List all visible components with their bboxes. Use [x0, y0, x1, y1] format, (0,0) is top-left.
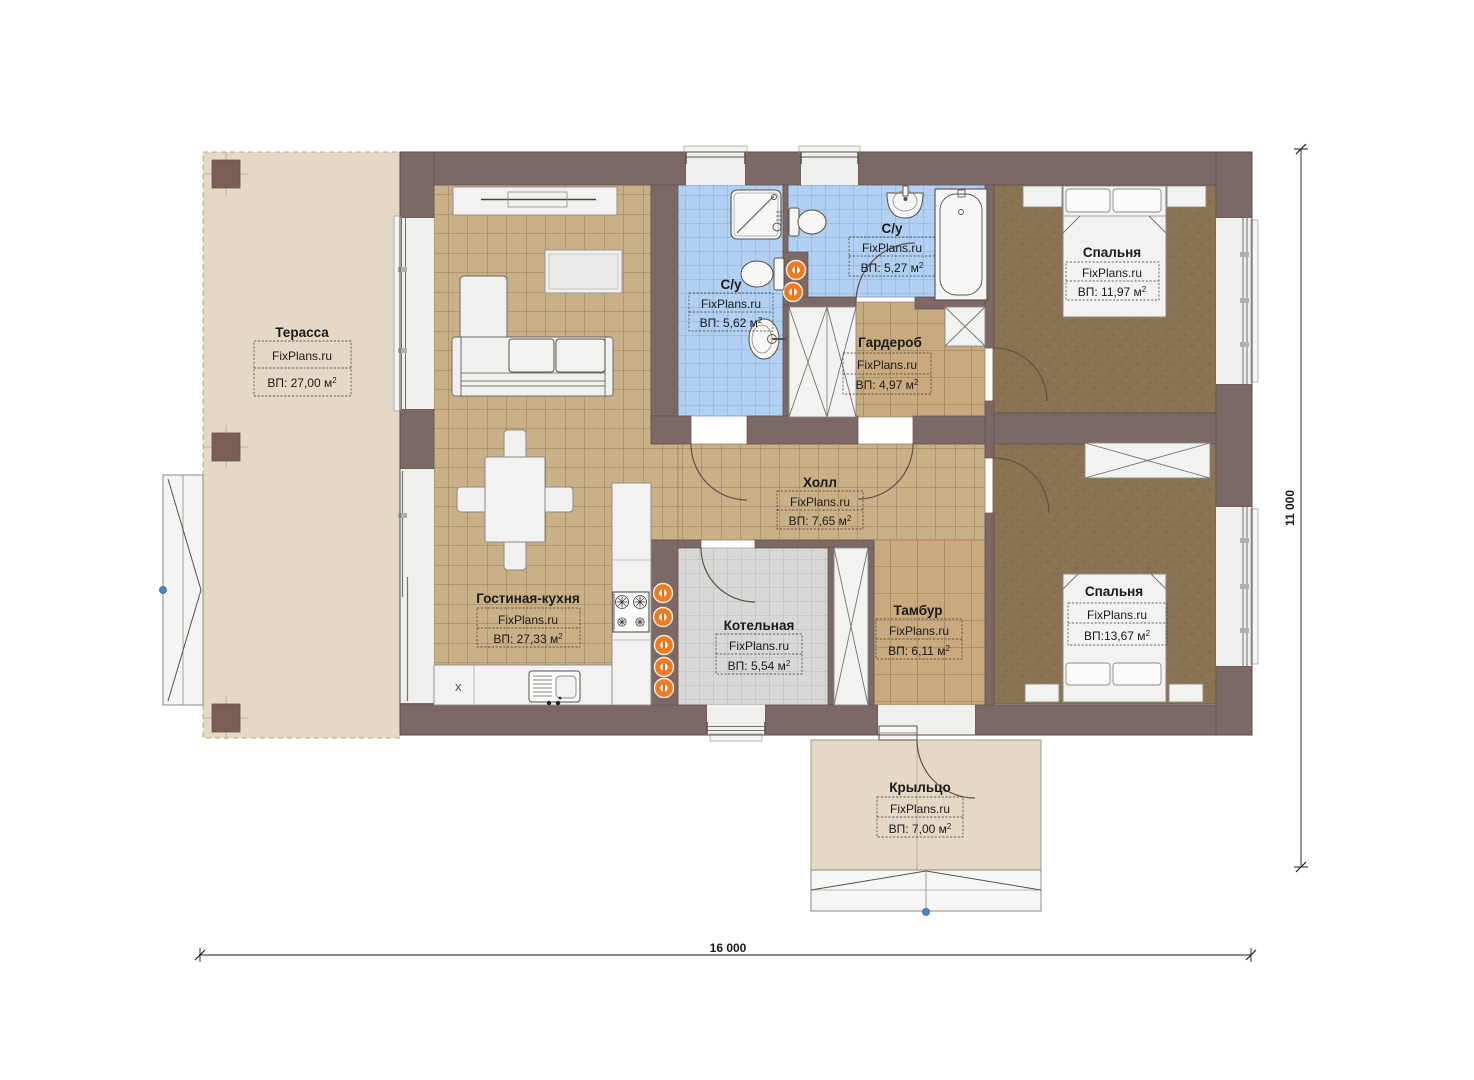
svg-text:Крыльцо: Крыльцо [889, 780, 950, 795]
svg-text:ВП: 6,11 м2: ВП: 6,11 м2 [888, 644, 950, 658]
svg-text:Спальня: Спальня [1083, 245, 1141, 260]
svg-text:FixPlans.ru: FixPlans.ru [790, 495, 850, 509]
svg-text:FixPlans.ru: FixPlans.ru [701, 297, 761, 311]
svg-text:ВП: 7,65 м2: ВП: 7,65 м2 [789, 514, 852, 528]
svg-text:11 000: 11 000 [1283, 490, 1297, 526]
svg-text:FixPlans.ru: FixPlans.ru [729, 639, 789, 653]
svg-text:ВП:13,67 м2: ВП:13,67 м2 [1084, 629, 1151, 643]
svg-text:С/у: С/у [720, 277, 742, 292]
svg-text:ВП: 5,27 м2: ВП: 5,27 м2 [861, 261, 924, 275]
svg-text:FixPlans.ru: FixPlans.ru [890, 802, 950, 816]
svg-text:FixPlans.ru: FixPlans.ru [1082, 266, 1142, 280]
svg-text:16 000: 16 000 [710, 941, 747, 955]
svg-text:ВП: 4,97 м2: ВП: 4,97 м2 [856, 378, 919, 392]
svg-text:ВП: 7,00 м2: ВП: 7,00 м2 [889, 822, 952, 836]
svg-text:FixPlans.ru: FixPlans.ru [272, 349, 332, 363]
svg-text:ВП: 27,33 м2: ВП: 27,33 м2 [493, 632, 563, 646]
svg-text:ВП: 5,54 м2: ВП: 5,54 м2 [728, 659, 791, 673]
svg-text:ВП: 5,62 м2: ВП: 5,62 м2 [700, 316, 763, 330]
svg-text:Гостиная-кухня: Гостиная-кухня [476, 591, 579, 606]
svg-text:С/у: С/у [881, 221, 903, 236]
svg-text:FixPlans.ru: FixPlans.ru [889, 624, 949, 638]
svg-text:ВП: 11,97 м2: ВП: 11,97 м2 [1078, 285, 1147, 299]
svg-text:FixPlans.ru: FixPlans.ru [498, 613, 558, 627]
svg-text:Котельная: Котельная [724, 618, 795, 633]
svg-text:FixPlans.ru: FixPlans.ru [857, 358, 917, 372]
svg-text:Тамбур: Тамбур [894, 603, 943, 618]
svg-text:ВП: 27,00 м2: ВП: 27,00 м2 [267, 376, 337, 390]
svg-text:FixPlans.ru: FixPlans.ru [1087, 608, 1147, 622]
svg-text:FixPlans.ru: FixPlans.ru [862, 241, 922, 255]
svg-text:Холл: Холл [803, 475, 837, 490]
svg-text:Терасса: Терасса [275, 325, 329, 340]
svg-text:Гардероб: Гардероб [858, 335, 922, 350]
svg-text:x: x [455, 679, 462, 694]
svg-text:Спальня: Спальня [1085, 584, 1143, 599]
